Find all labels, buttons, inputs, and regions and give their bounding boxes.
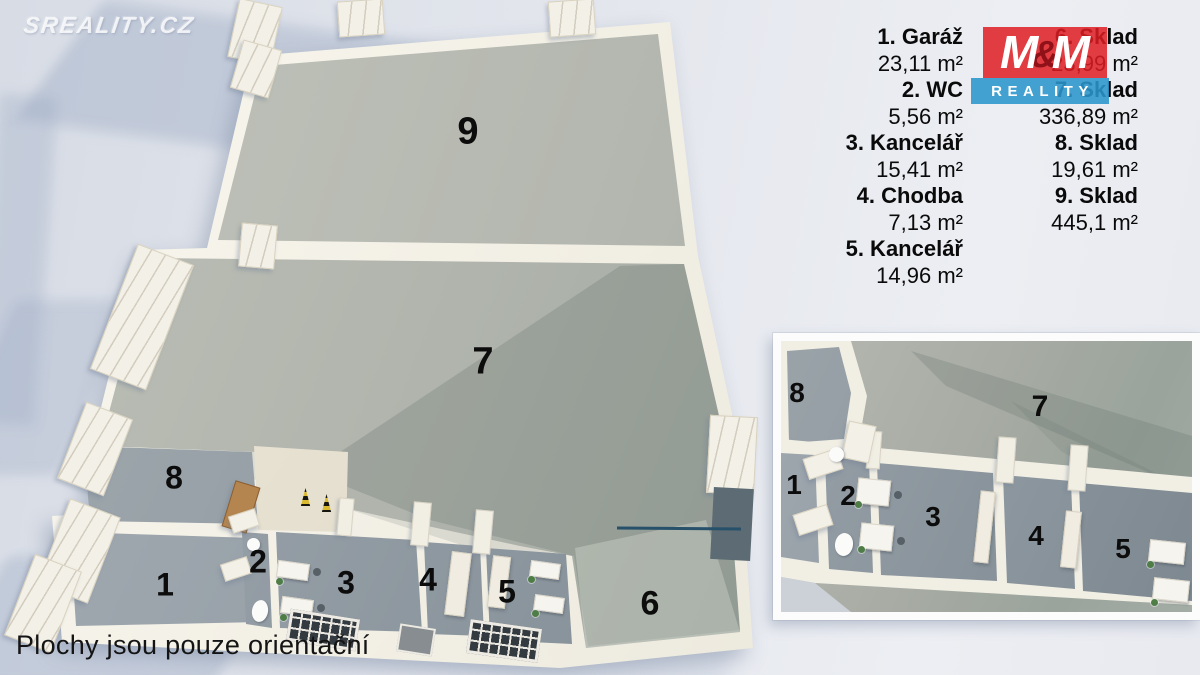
divider-door-panel: [238, 223, 278, 270]
inset-plant: [855, 501, 862, 508]
inset-office-chair: [894, 491, 902, 499]
room-label-9: 9: [457, 111, 478, 154]
inset-office-chair: [897, 537, 905, 545]
room-label-3: 3: [337, 565, 355, 602]
legend-room-area: 7,13 m²: [763, 210, 963, 237]
disclaimer-note: Plochy jsou pouze orientační: [16, 630, 370, 661]
legend-room-area: 5,56 m²: [763, 104, 963, 131]
plant: [532, 610, 539, 617]
plant: [528, 576, 535, 583]
inset-plant: [1151, 599, 1158, 606]
room-label-1: 1: [156, 567, 174, 604]
room-label-7: 7: [472, 341, 493, 384]
room-label-6: 6: [641, 585, 660, 624]
sreality-watermark: SREALITY.CZ: [22, 12, 196, 39]
wall-stub: [472, 509, 494, 554]
top-door-panel: [337, 0, 385, 38]
legend-room-name: 4. Chodba: [763, 183, 963, 210]
legend-room-name: 9. Sklad: [968, 183, 1138, 210]
inset-office-desk: [1152, 577, 1190, 603]
inset-room-label-4: 4: [1028, 520, 1044, 552]
office-chair: [313, 568, 321, 576]
inset-wall-stub: [995, 436, 1016, 483]
right-wall-dark-face: [710, 487, 754, 561]
wall-stub: [410, 501, 432, 546]
legend-room-area: 19,61 m²: [968, 157, 1138, 184]
logo-wordmark: REALITY: [971, 78, 1109, 104]
inset-office-desk: [1148, 539, 1186, 565]
legend-room-area: 15,41 m²: [763, 157, 963, 184]
inset-room-label-2: 2: [840, 480, 856, 512]
right-door-panel: [706, 415, 758, 495]
legend-room-name: 5. Kancelář: [763, 236, 963, 263]
inset-room-label-3: 3: [925, 501, 941, 533]
legend-room-area: 14,96 m²: [763, 263, 963, 290]
legend-room-area: 336,89 m²: [968, 104, 1138, 131]
logo-mark: M&M: [983, 27, 1107, 78]
entry-door-gap: [396, 623, 436, 656]
plant: [276, 578, 283, 585]
inset-room-label-8: 8: [789, 377, 805, 409]
legend-column-left: 1. Garáž 23,11 m² 2. WC 5,56 m² 3. Kance…: [763, 24, 963, 289]
room-label-4: 4: [419, 562, 437, 599]
inset-room-label-7: 7: [1032, 390, 1049, 424]
legend-room-area: 23,11 m²: [763, 51, 963, 78]
inset-room-label-1: 1: [786, 469, 802, 501]
legend-room-name: 8. Sklad: [968, 130, 1138, 157]
inset-plant: [1147, 561, 1154, 568]
inset-room-label-5: 5: [1115, 533, 1131, 565]
floorplan-image: 9 7 8 1 2 3 4 5 6 SREALITY.CZ 1. Garáž 2…: [0, 0, 1200, 675]
plant: [280, 614, 287, 621]
detail-inset-panel: 8 7 1 2 3 4 5: [773, 333, 1200, 620]
inset-wall-stub: [1067, 444, 1088, 491]
room-label-5: 5: [498, 574, 516, 611]
room-label-8: 8: [165, 460, 183, 497]
detail-inset-image: 8 7 1 2 3 4 5: [781, 341, 1192, 612]
legend-room-name: 3. Kancelář: [763, 130, 963, 157]
inset-sink: [829, 447, 844, 462]
inset-plant: [858, 546, 865, 553]
legend-room-area: 445,1 m²: [968, 210, 1138, 237]
room-label-2: 2: [249, 544, 267, 581]
legend-room-name: 2. WC: [763, 77, 963, 104]
top-door-panel: [548, 0, 596, 38]
legend-room-name: 1. Garáž: [763, 24, 963, 51]
logo-letter-m: M: [1052, 27, 1090, 78]
office-chair: [317, 604, 325, 612]
logo-letter-m: M: [1000, 27, 1038, 78]
